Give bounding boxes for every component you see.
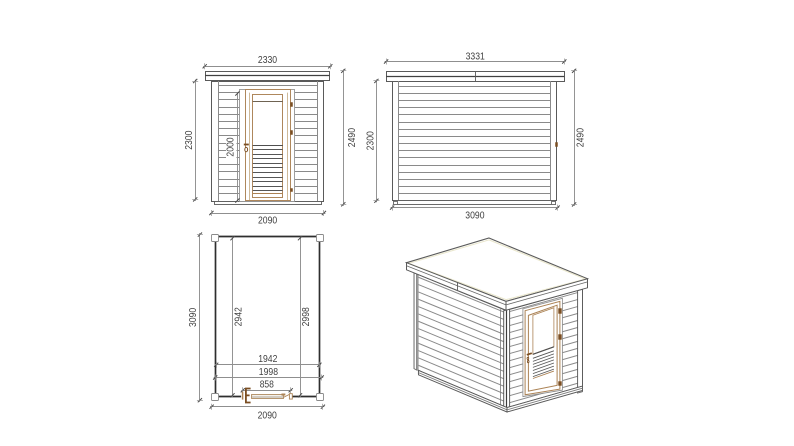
svg-text:2942: 2942 — [233, 307, 244, 326]
svg-text:2490: 2490 — [576, 128, 587, 147]
svg-text:2000: 2000 — [226, 137, 237, 156]
svg-text:1998: 1998 — [259, 367, 278, 378]
svg-text:2300: 2300 — [365, 131, 376, 150]
svg-text:2090: 2090 — [258, 410, 277, 421]
svg-text:2090: 2090 — [258, 216, 277, 227]
svg-text:3090: 3090 — [188, 308, 199, 327]
svg-text:1942: 1942 — [258, 354, 277, 365]
svg-text:2490: 2490 — [347, 128, 358, 147]
svg-text:3090: 3090 — [465, 211, 484, 222]
svg-text:3331: 3331 — [466, 51, 485, 62]
svg-text:2998: 2998 — [301, 307, 312, 326]
svg-text:2300: 2300 — [184, 130, 195, 149]
svg-text:2330: 2330 — [258, 55, 277, 66]
svg-text:858: 858 — [260, 380, 274, 391]
